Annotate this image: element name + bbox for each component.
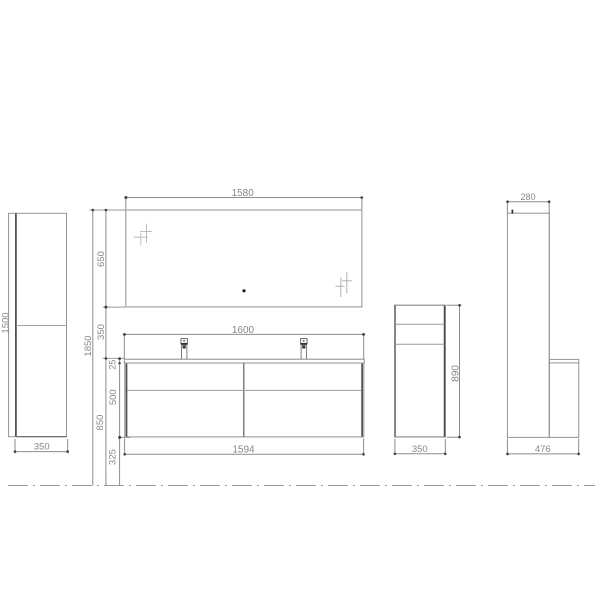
svg-text:350: 350 (96, 324, 107, 340)
svg-text:650: 650 (96, 251, 107, 267)
svg-text:1600: 1600 (232, 325, 255, 336)
svg-text:850: 850 (95, 415, 106, 431)
svg-text:1850: 1850 (83, 335, 94, 356)
svg-text:280: 280 (520, 192, 535, 202)
svg-text:350: 350 (34, 441, 50, 452)
svg-text:325: 325 (108, 449, 119, 465)
svg-text:476: 476 (535, 444, 551, 455)
svg-text:1580: 1580 (232, 188, 255, 199)
svg-text:1500: 1500 (1, 312, 12, 333)
svg-text:500: 500 (108, 389, 119, 405)
svg-text:350: 350 (412, 444, 428, 455)
svg-text:890: 890 (450, 365, 461, 382)
svg-text:25: 25 (108, 360, 118, 370)
svg-text:1594: 1594 (232, 444, 255, 455)
